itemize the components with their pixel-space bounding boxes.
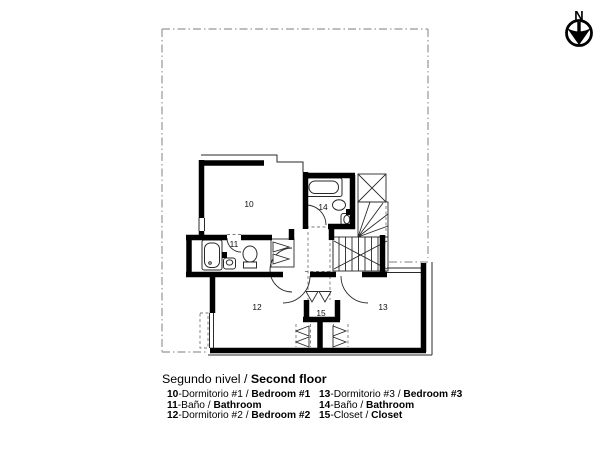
closet-room13-triangles — [333, 326, 346, 336]
closet-room12-triangles — [296, 326, 309, 336]
balcony-door-room12 — [200, 313, 208, 348]
plan-title-es: Segundo nivel / — [162, 372, 251, 386]
north-arrow-icon: N — [567, 8, 592, 46]
door-arcs — [227, 205, 368, 303]
plan-title: Segundo nivel / Second floor — [162, 372, 327, 386]
wardrobe-symbols — [271, 239, 346, 347]
door-room13 — [341, 276, 368, 303]
room-10-label: 10 — [244, 199, 254, 209]
legend-item-12: 12-Dormitorio #2 / Bedroom #2 — [167, 411, 310, 422]
low-wall-room13 — [387, 268, 423, 273]
sink-icon-room14 — [333, 200, 346, 210]
room-15-label: 15 — [316, 308, 326, 318]
window-room10 — [199, 218, 205, 231]
legend-column-1: 10-Dormitorio #1 / Bedroom #1 11-Baño / … — [167, 390, 310, 422]
window-room12 — [210, 313, 214, 348]
sink-icon-room11 — [243, 246, 257, 268]
bathtub-icon-room11 — [202, 240, 222, 270]
plan-title-en: Second floor — [251, 372, 327, 386]
bathtub-icon-room14 — [306, 178, 342, 197]
room-11-label: 11 — [230, 239, 239, 249]
room-12-label: 12 — [252, 302, 262, 312]
toilet-icon-room11 — [224, 258, 236, 269]
door-room12 — [283, 276, 310, 303]
room-14-label: 14 — [318, 202, 328, 212]
thin-lines — [199, 155, 432, 355]
legend-item-15: 15-Closet / Closet — [319, 411, 462, 422]
legend-column-2: 13-Dormitorio #3 / Bedroom #3 14-Baño / … — [319, 390, 462, 422]
room-13-label: 13 — [378, 302, 388, 312]
floor-plan-page: 10 11 12 13 14 15 N Segundo nivel / Seco… — [0, 0, 601, 450]
